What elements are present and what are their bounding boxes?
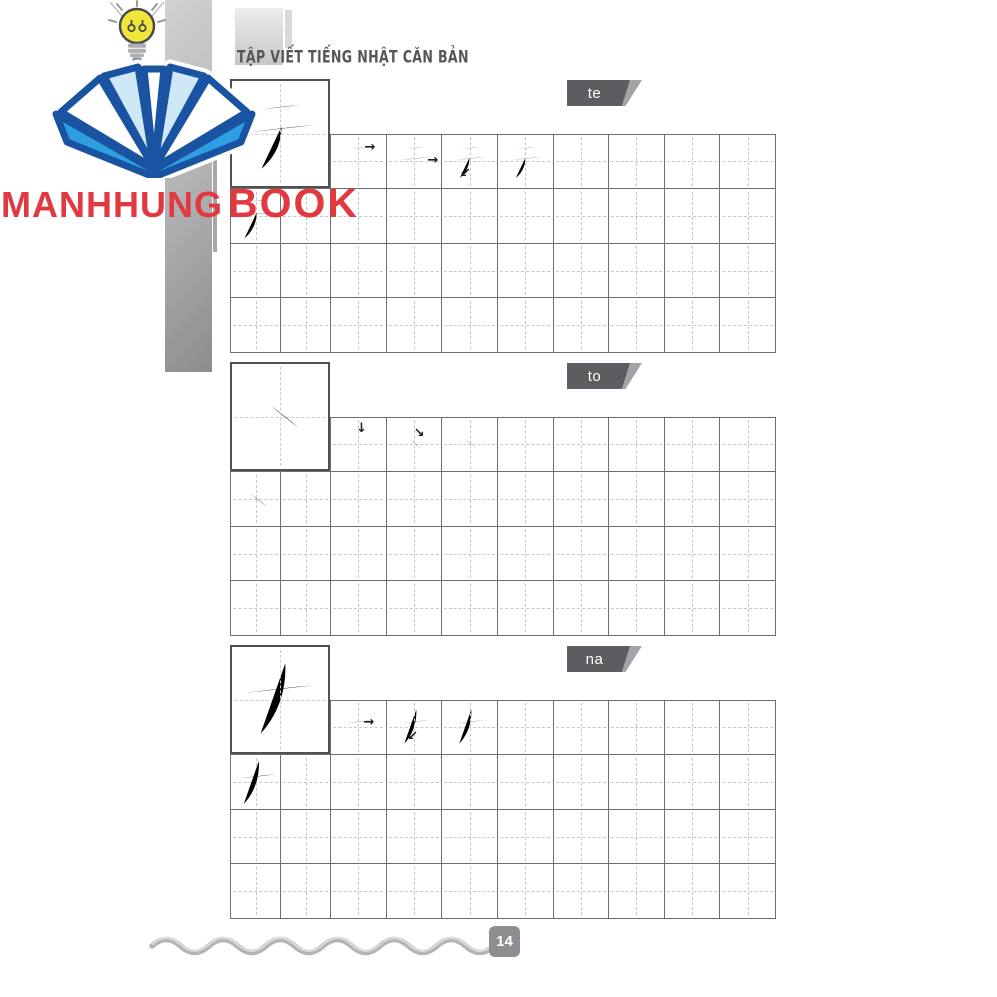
practice-cell	[497, 863, 554, 919]
stroke-step-cell: →	[330, 700, 387, 756]
practice-cell	[497, 754, 554, 810]
trace-kana-glyph	[446, 421, 492, 467]
practice-cell	[230, 526, 281, 582]
practice-cell	[664, 134, 721, 190]
practice-cell	[719, 809, 776, 865]
practice-cell	[497, 243, 554, 299]
practice-cell	[664, 754, 721, 810]
stroke-step-cell: ↙	[441, 134, 498, 190]
practice-cell	[608, 297, 665, 353]
practice-cell	[553, 700, 610, 756]
practice-cell	[330, 297, 387, 353]
stroke-direction-arrow: ↘	[414, 427, 425, 440]
practice-cell	[553, 297, 610, 353]
practice-cell	[608, 243, 665, 299]
trace-template-cell	[441, 417, 498, 473]
stroke-direction-arrow: →	[364, 716, 375, 729]
practice-cell	[719, 243, 776, 299]
kana-section-to: ↓↘to	[230, 362, 775, 635]
practice-cell	[386, 243, 443, 299]
practice-cell	[330, 809, 387, 865]
romaji-label: te	[588, 86, 610, 101]
kana-section-na: →↙na	[230, 645, 775, 918]
stroke-step-cell: ↓	[330, 417, 387, 473]
practice-cell	[608, 754, 665, 810]
tab-face: na	[567, 646, 630, 672]
practice-cell	[608, 134, 665, 190]
brand-name-secondary: BOOK	[228, 180, 359, 227]
practice-cell	[330, 471, 387, 527]
practice-cell	[441, 809, 498, 865]
practice-cell	[497, 471, 554, 527]
practice-cell	[664, 243, 721, 299]
stroke-direction-arrow: ↓	[356, 422, 367, 435]
practice-cell	[280, 863, 331, 919]
practice-cell	[719, 297, 776, 353]
practice-cell	[497, 700, 554, 756]
practice-cell	[280, 809, 331, 865]
tab-face: to	[567, 363, 630, 389]
practice-cell	[553, 754, 610, 810]
practice-cell	[664, 471, 721, 527]
practice-cell	[553, 526, 610, 582]
stroke-direction-arrow: ↙	[407, 730, 418, 743]
practice-cell	[719, 580, 776, 636]
practice-cell	[386, 863, 443, 919]
practice-cell	[230, 863, 281, 919]
big-character-box	[230, 645, 330, 754]
stroke-step-cell: ↙	[386, 700, 443, 756]
practice-cell	[230, 297, 281, 353]
practice-cell	[441, 863, 498, 919]
practice-cell	[608, 863, 665, 919]
practice-cell	[386, 580, 443, 636]
practice-cell	[330, 754, 387, 810]
big-character-box	[230, 362, 330, 471]
practice-cell	[608, 188, 665, 244]
practice-cell	[664, 188, 721, 244]
trace-kana-glyph	[227, 471, 285, 529]
romaji-label: na	[586, 652, 612, 667]
practice-cell	[553, 863, 610, 919]
stroke-direction-arrow: ↙	[460, 167, 471, 180]
practice-cell	[719, 417, 776, 473]
practice-cell	[386, 471, 443, 527]
practice-cell	[497, 188, 554, 244]
practice-cell	[441, 188, 498, 244]
practice-cell	[497, 297, 554, 353]
practice-cell	[664, 809, 721, 865]
header-accent-bar-small	[285, 10, 292, 48]
practice-cell	[280, 297, 331, 353]
practice-cell	[386, 188, 443, 244]
practice-cell	[719, 526, 776, 582]
practice-cell	[230, 243, 281, 299]
practice-cell	[230, 580, 281, 636]
practice-cell	[230, 471, 281, 527]
practice-cell	[280, 243, 331, 299]
lightbulb-icon	[92, 0, 182, 63]
romaji-label: to	[588, 369, 610, 384]
practice-cell	[330, 863, 387, 919]
practice-cell	[280, 580, 331, 636]
practice-cell	[497, 809, 554, 865]
practice-cell	[441, 754, 498, 810]
practice-cell	[719, 471, 776, 527]
practice-cell	[386, 754, 443, 810]
trace-template-cell	[497, 134, 554, 190]
practice-cell	[608, 700, 665, 756]
stroke-direction-arrow: →	[364, 141, 375, 154]
practice-cell	[441, 471, 498, 527]
trace-kana-glyph	[227, 754, 285, 812]
practice-cell	[280, 754, 331, 810]
practice-cell	[719, 134, 776, 190]
practice-cell	[280, 471, 331, 527]
practice-cell	[608, 526, 665, 582]
practice-cell	[553, 809, 610, 865]
practice-cell	[664, 700, 721, 756]
practice-cell	[553, 471, 610, 527]
brand-wordmark: MANHHUNGBOOK	[1, 180, 359, 227]
practice-cell	[719, 700, 776, 756]
practice-cell	[386, 526, 443, 582]
practice-cell	[608, 471, 665, 527]
trace-kana-glyph	[502, 138, 548, 184]
practice-cell	[386, 297, 443, 353]
page-title: TẬP VIẾT TIẾNG NHẬT CĂN BẢN	[237, 47, 469, 67]
practice-cell	[664, 863, 721, 919]
trace-kana-glyph	[446, 704, 492, 750]
practice-cell	[441, 297, 498, 353]
page-number-badge: 14	[489, 926, 520, 957]
practice-cell	[608, 809, 665, 865]
stroke-direction-arrow: →	[427, 154, 438, 167]
practice-cell	[230, 754, 281, 810]
stroke-step-cell: →	[386, 134, 443, 190]
practice-cell	[719, 188, 776, 244]
brand-name-primary: MANHHUNG	[1, 184, 223, 226]
practice-cell	[664, 417, 721, 473]
wavy-divider	[148, 928, 498, 958]
big-kana-glyph	[233, 652, 328, 747]
practice-cell	[664, 580, 721, 636]
tab-face: te	[567, 80, 630, 106]
practice-cell	[553, 188, 610, 244]
practice-cell	[441, 243, 498, 299]
practice-cell	[553, 417, 610, 473]
practice-cell	[330, 243, 387, 299]
practice-cell	[441, 580, 498, 636]
big-kana-glyph	[233, 369, 328, 464]
practice-cell	[719, 863, 776, 919]
practice-cell	[608, 580, 665, 636]
trace-template-cell	[441, 700, 498, 756]
practice-cell	[330, 526, 387, 582]
practice-cell	[330, 580, 387, 636]
practice-cell	[608, 417, 665, 473]
open-book-icon	[40, 56, 268, 178]
practice-cell	[553, 243, 610, 299]
practice-cell	[386, 809, 443, 865]
practice-cell	[553, 134, 610, 190]
practice-cell	[441, 526, 498, 582]
practice-cell	[553, 580, 610, 636]
practice-cell	[719, 754, 776, 810]
practice-cell	[497, 580, 554, 636]
practice-cell	[230, 809, 281, 865]
practice-cell	[664, 526, 721, 582]
practice-cell	[497, 526, 554, 582]
practice-cell	[664, 297, 721, 353]
practice-cell	[497, 417, 554, 473]
stroke-step-cell: ↘	[386, 417, 443, 473]
practice-cell	[280, 526, 331, 582]
